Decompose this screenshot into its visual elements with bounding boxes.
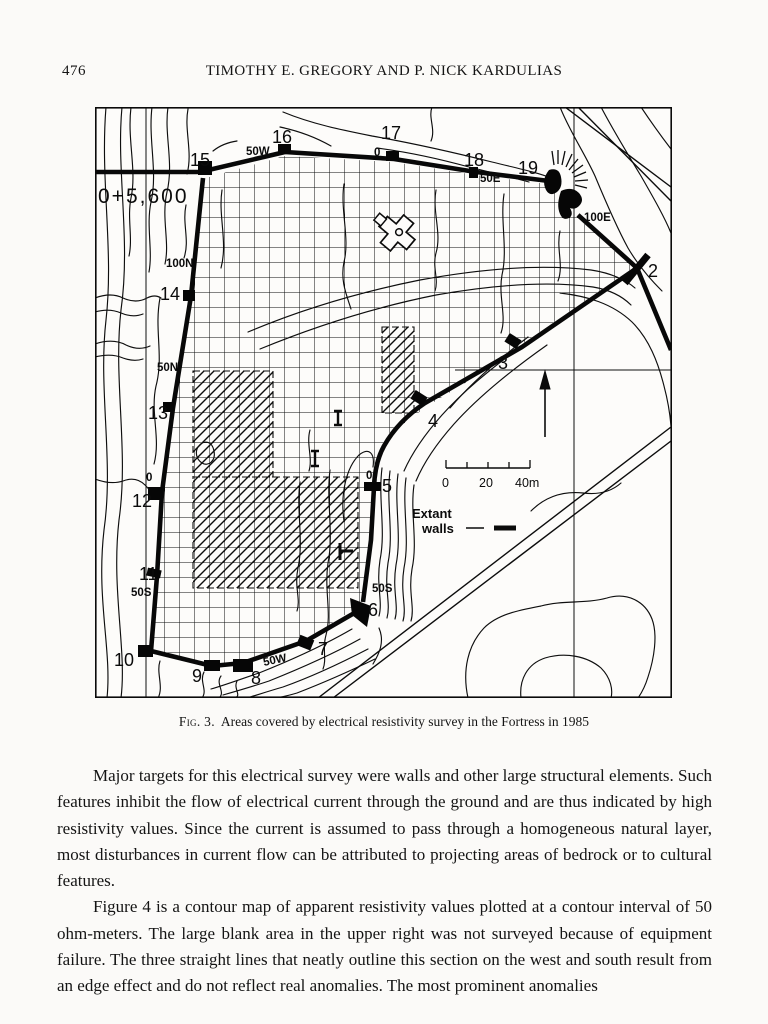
body-text: Major targets for this electrical survey… [57, 763, 712, 1000]
grid-label-0-top: 0 [374, 147, 380, 159]
station-label-10: 10 [114, 650, 134, 670]
figure-caption: Fig. 3.Areas covered by electrical resis… [0, 714, 768, 730]
figure-map: 0 20 40m Extant walls 15 16 17 18 19 2 3… [95, 107, 672, 698]
body-paragraph-2: Figure 4 is a contour map of apparent re… [57, 894, 712, 999]
grid-label-100n: 100N [166, 258, 194, 270]
legend-extant: Extant [412, 506, 452, 521]
figure-caption-text: Areas covered by electrical resistivity … [221, 714, 589, 729]
grid-label-50n: 50N [157, 362, 178, 374]
scale-label-20: 20 [479, 476, 493, 490]
station-label-19: 19 [518, 158, 538, 178]
station-label-3: 3 [498, 353, 508, 373]
grid-label-50s-east: 50S [372, 583, 393, 595]
station-label-2: 2 [648, 261, 658, 281]
body-paragraph-1: Major targets for this electrical survey… [57, 763, 712, 894]
grid-label-0-west: 0 [146, 472, 152, 484]
station-label-4: 4 [428, 411, 438, 431]
station-label-6: 6 [368, 600, 378, 620]
grid-label-0-east: 0 [366, 470, 372, 482]
station-label-15: 15 [190, 150, 210, 170]
hatched-area-north [382, 327, 414, 413]
station-label-11: 11 [139, 564, 158, 584]
hatched-area-south [193, 477, 358, 588]
station-label-12: 12 [132, 491, 152, 511]
scale-label-0: 0 [442, 476, 449, 490]
grid-label-50w-top: 50W [246, 146, 270, 158]
station-label-17: 17 [381, 123, 401, 143]
running-header: TIMOTHY E. GREGORY AND P. NICK KARDULIAS [0, 63, 768, 80]
station-label-5: 5 [382, 476, 392, 496]
station-label-13: 13 [148, 403, 168, 423]
legend-walls: walls [421, 521, 454, 536]
grid-label-50e: 50E [480, 173, 501, 185]
station-label-9: 9 [192, 666, 202, 686]
grid-label-50s-west: 50S [131, 587, 152, 599]
figure-caption-label: Fig. 3. [179, 714, 215, 729]
station-label-18: 18 [464, 150, 484, 170]
hatched-area-west [193, 371, 273, 477]
station-label-8: 8 [251, 668, 261, 688]
station-label-14: 14 [160, 284, 180, 304]
datum-label: 0+5,600 [98, 185, 189, 208]
map-svg: 0 20 40m Extant walls 15 16 17 18 19 2 3… [95, 107, 672, 698]
station-label-7: 7 [318, 639, 328, 659]
station-label-16: 16 [272, 127, 292, 147]
scale-label-40m: 40m [515, 476, 539, 490]
grid-label-100e: 100E [584, 212, 611, 224]
